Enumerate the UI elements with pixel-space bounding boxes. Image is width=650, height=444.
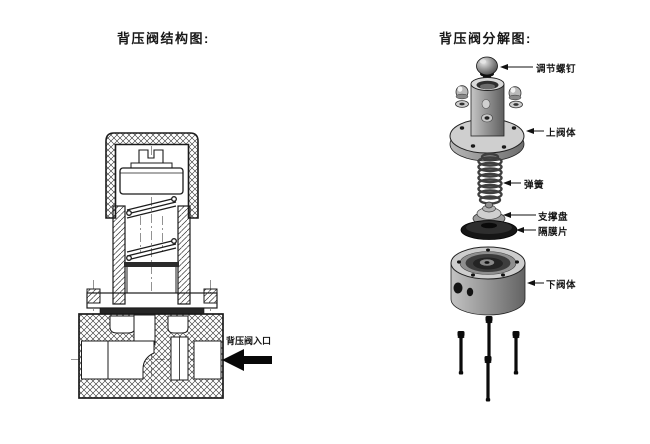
bolt (513, 331, 520, 375)
spring-label: 弹簧 (524, 177, 544, 191)
diaphragm-leader (516, 227, 536, 233)
diaphragm-label: 隔膜片 (538, 224, 568, 238)
inlet-label: 背压阀入口 (226, 334, 271, 347)
support-plate-leader (503, 212, 536, 218)
diaphragm-part (461, 221, 517, 240)
structure-diagram (71, 133, 272, 398)
adjusting-screw-label: 调节螺钉 (536, 61, 576, 75)
adjusting-screw-part (477, 57, 498, 80)
lower-valve-body-part (451, 247, 525, 315)
bolt (458, 331, 465, 375)
valve-base-block (79, 314, 223, 398)
exploded-diagram (450, 57, 544, 402)
spring-leader (503, 180, 521, 186)
inlet-arrow (222, 349, 272, 371)
valve-diagram-page: 背压阀结构图: 背压阀分解图: 背压阀入口 调节螺钉 上阀体 弹簧 支撑盘 隔膜… (0, 0, 650, 444)
support-plate-label: 支撑盘 (538, 209, 568, 223)
bonnet-flange (87, 289, 217, 308)
diaphragm-plate (100, 308, 204, 314)
exploded-title: 背压阀分解图: (439, 28, 532, 47)
structure-title: 背压阀结构图: (117, 28, 210, 47)
adjusting-screw-leader (500, 64, 533, 70)
spring-part (479, 154, 502, 204)
spring-seat-block (120, 168, 183, 194)
bolt (486, 316, 493, 360)
upper-valve-body-leader (526, 128, 544, 134)
lower-valve-body-label: 下阀体 (546, 277, 576, 291)
bolt (485, 356, 492, 402)
bolts-part (458, 316, 520, 402)
lower-valve-body-leader (527, 280, 544, 286)
upper-valve-body-label: 上阀体 (546, 125, 576, 139)
